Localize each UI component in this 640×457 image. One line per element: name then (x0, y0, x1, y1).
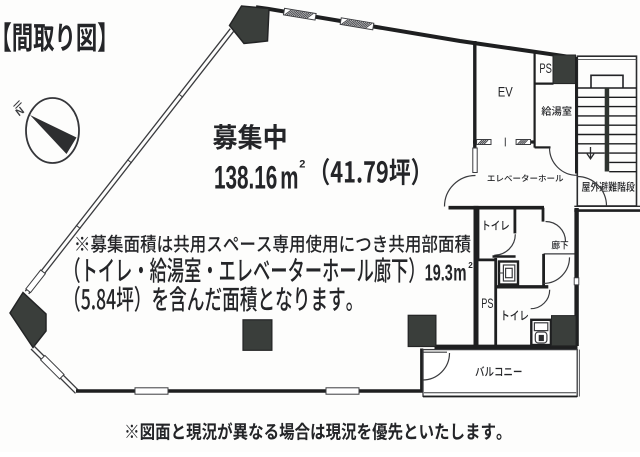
svg-text:138.16: 138.16 (214, 159, 277, 195)
svg-text:2: 2 (468, 261, 473, 270)
svg-text:PS: PS (539, 61, 552, 76)
svg-text:m: m (280, 159, 298, 195)
svg-text:m: m (453, 259, 466, 285)
svg-text:PS: PS (481, 296, 493, 311)
svg-text:19.3: 19.3 (425, 259, 453, 285)
svg-text:2: 2 (299, 159, 305, 171)
svg-text:EV: EV (498, 84, 513, 99)
